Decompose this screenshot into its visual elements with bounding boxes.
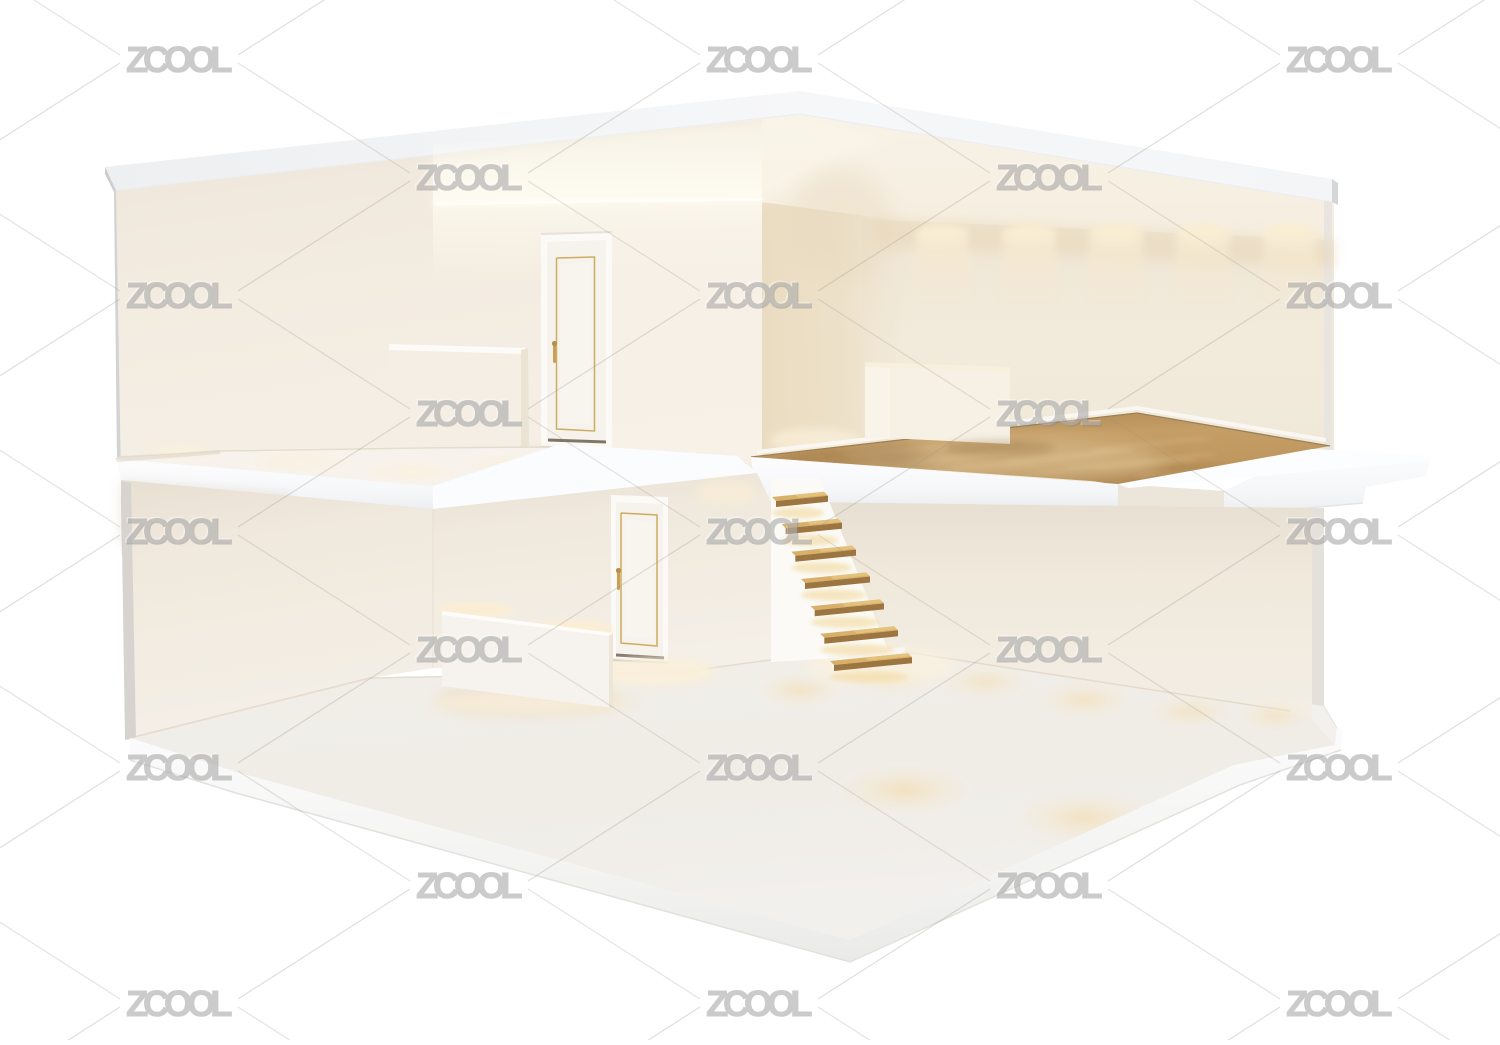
- svg-text:ZCOOL: ZCOOL: [996, 865, 1102, 906]
- svg-text:ZCOOL: ZCOOL: [416, 865, 522, 906]
- svg-text:ZCOOL: ZCOOL: [416, 393, 522, 434]
- svg-text:ZCOOL: ZCOOL: [706, 511, 812, 552]
- svg-text:ZCOOL: ZCOOL: [126, 983, 232, 1024]
- svg-text:ZCOOL: ZCOOL: [706, 983, 812, 1024]
- svg-text:ZCOOL: ZCOOL: [706, 275, 812, 316]
- svg-text:ZCOOL: ZCOOL: [996, 629, 1102, 670]
- svg-text:ZCOOL: ZCOOL: [1286, 983, 1392, 1024]
- svg-text:ZCOOL: ZCOOL: [996, 393, 1102, 434]
- svg-text:ZCOOL: ZCOOL: [1286, 275, 1392, 316]
- svg-text:ZCOOL: ZCOOL: [706, 39, 812, 80]
- svg-text:ZCOOL: ZCOOL: [126, 39, 232, 80]
- svg-text:ZCOOL: ZCOOL: [126, 511, 232, 552]
- svg-text:ZCOOL: ZCOOL: [126, 747, 232, 788]
- svg-text:ZCOOL: ZCOOL: [706, 747, 812, 788]
- svg-text:ZCOOL: ZCOOL: [126, 275, 232, 316]
- svg-text:ZCOOL: ZCOOL: [1286, 747, 1392, 788]
- svg-text:ZCOOL: ZCOOL: [416, 629, 522, 670]
- svg-text:ZCOOL: ZCOOL: [996, 157, 1102, 198]
- svg-text:ZCOOL: ZCOOL: [416, 157, 522, 198]
- svg-text:ZCOOL: ZCOOL: [1286, 511, 1392, 552]
- svg-text:ZCOOL: ZCOOL: [1286, 39, 1392, 80]
